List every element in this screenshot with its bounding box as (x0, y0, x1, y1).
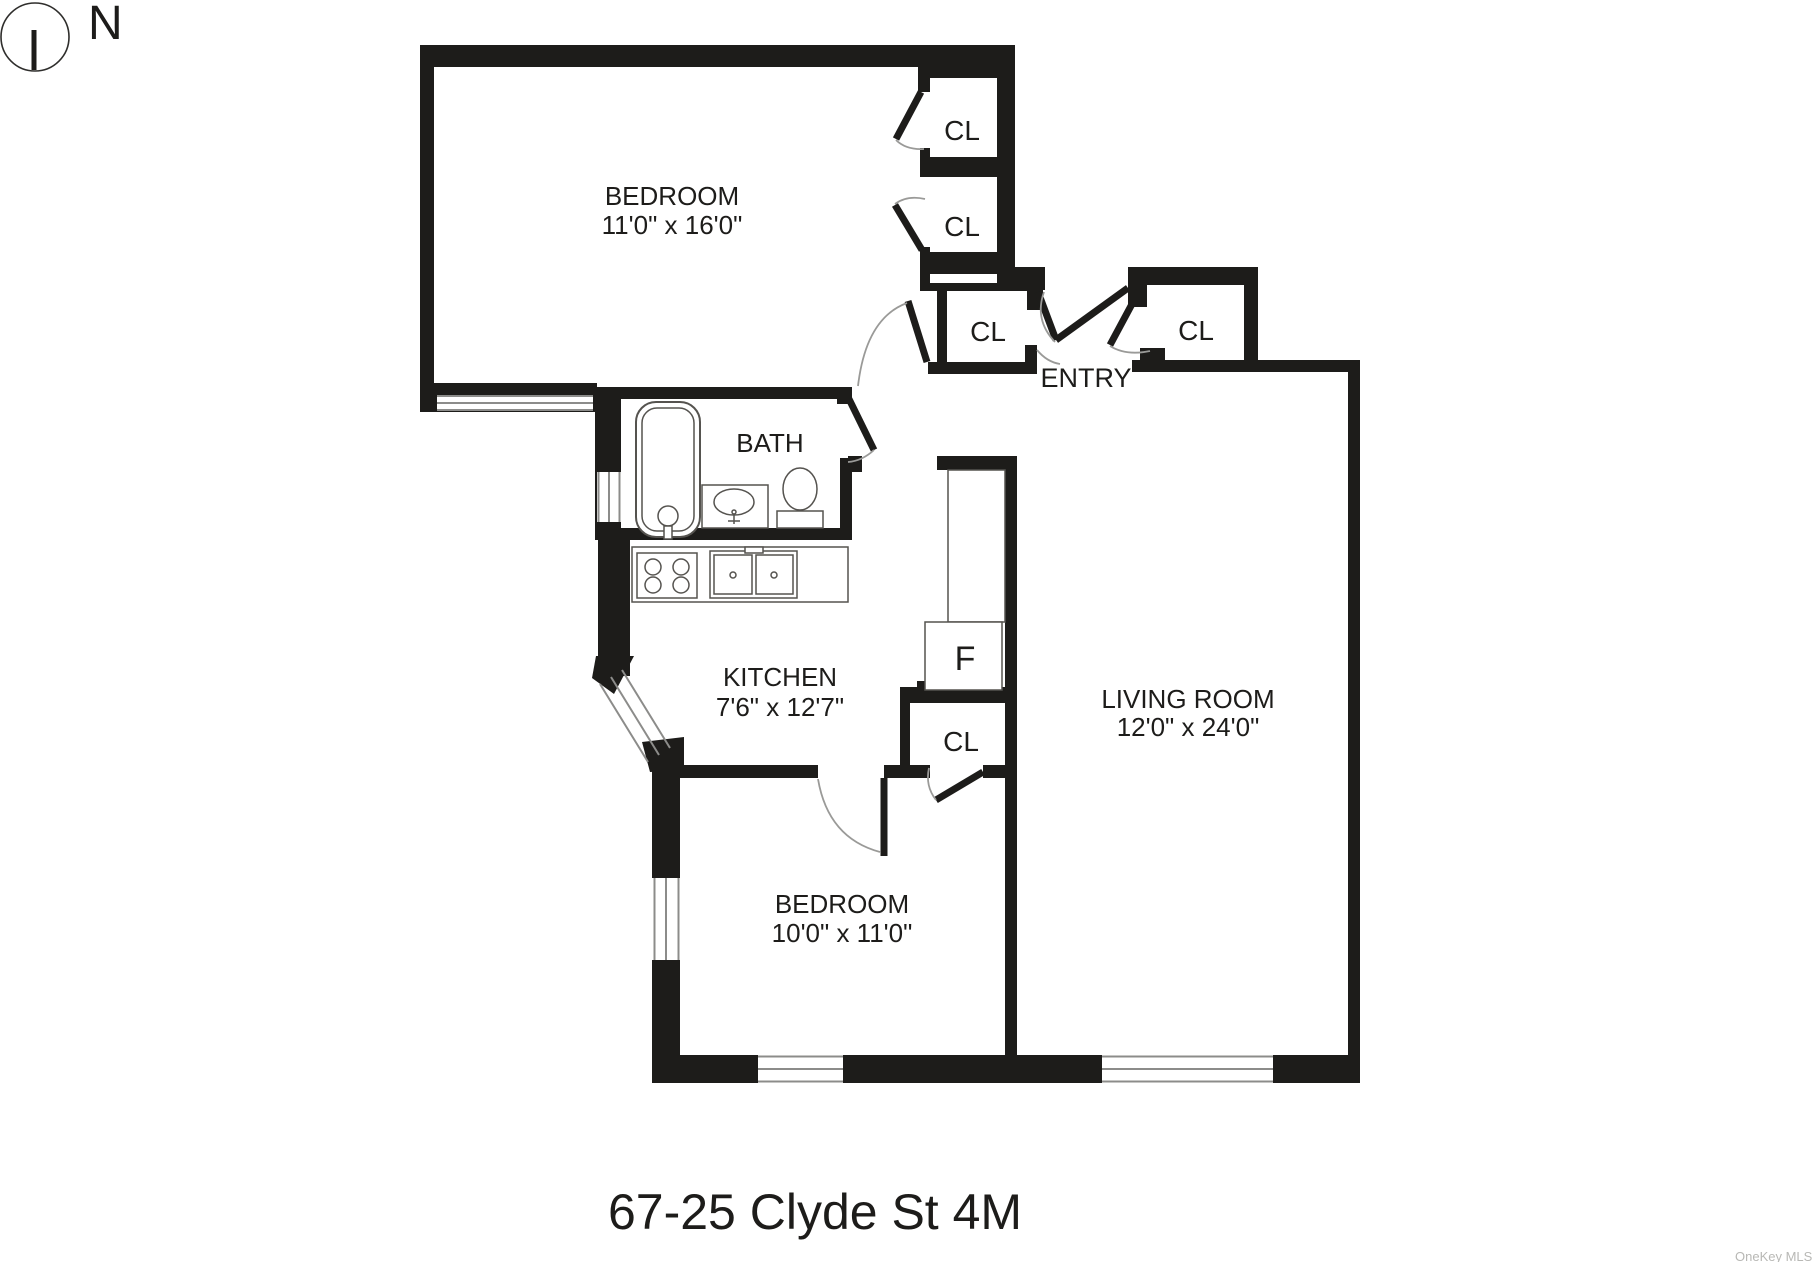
closet-entry-right-label: CL (1178, 315, 1214, 346)
wall-segment (884, 765, 930, 778)
wall-segment (1132, 360, 1355, 372)
wall-segment (420, 45, 434, 383)
north-label: N (88, 0, 123, 50)
wall-segment (420, 45, 1015, 67)
stove (637, 553, 697, 598)
bathtub (636, 402, 700, 539)
door-closet-top-1 (896, 92, 924, 149)
closet-entry-left-label: CL (970, 316, 1006, 347)
door-closet-entry-left (1037, 292, 1060, 364)
entry-label: ENTRY (1040, 363, 1131, 393)
kitchen-sink (710, 547, 797, 598)
wall-segment (1025, 345, 1037, 365)
wall-segment (1005, 490, 1017, 1055)
wall-segment (900, 703, 910, 765)
door-closet-bedroom-bottom (928, 768, 983, 800)
bedroom-top-label: BEDROOM (605, 181, 739, 211)
refrigerator-label: F (955, 640, 976, 678)
bathroom-sink (702, 485, 768, 528)
wall-segment (997, 45, 1015, 291)
window-living-room (1102, 1055, 1273, 1083)
wall-segment (937, 291, 947, 362)
floorplan-page: BEDROOM 11'0" x 16'0" BATH KITCHEN 7'6" … (0, 0, 1820, 1262)
wall-segment (1013, 267, 1045, 290)
bedroom-bottom-dims: 10'0" x 11'0" (772, 918, 913, 948)
wall-segment (598, 540, 630, 676)
wall-segment (595, 528, 852, 540)
wall-segment (920, 148, 930, 177)
wall-segment (930, 157, 997, 177)
bedroom-top-dims: 11'0" x 16'0" (602, 210, 743, 240)
living-room-dims: 12'0" x 24'0" (1117, 712, 1260, 742)
page-title: 67-25 Clyde St 4M (608, 1184, 1022, 1240)
kitchen-dims: 7'6" x 12'7" (716, 692, 844, 722)
watermark: OneKey MLS (1735, 1249, 1813, 1262)
door-bedroom-top (858, 301, 927, 386)
footer: 67-25 Clyde St 4M OneKey MLS (608, 1184, 1813, 1262)
door-bath (848, 399, 874, 462)
wall-segment (928, 362, 1037, 374)
floorplan-drawing: BEDROOM 11'0" x 16'0" BATH KITCHEN 7'6" … (0, 0, 1820, 1262)
kitchen-label: KITCHEN (723, 662, 837, 692)
wall-segment (1244, 285, 1258, 372)
door-closet-top-2 (895, 198, 925, 250)
window-bedroom-top (437, 395, 593, 411)
wall-segment (1128, 267, 1258, 285)
toilet (777, 468, 823, 528)
bath-label: BATH (736, 428, 803, 458)
closet-bedroom-bottom-label: CL (943, 726, 979, 757)
window-bedroom-bottom-left (653, 878, 680, 960)
wall-segment (678, 765, 818, 778)
wall-segment (983, 765, 1007, 778)
window-bath (597, 472, 621, 522)
wall-segment (1348, 360, 1360, 1083)
window-bedroom-bottom (758, 1055, 843, 1083)
living-room-label: LIVING ROOM (1101, 684, 1274, 714)
wall-segment (937, 456, 1017, 470)
wall-segment (652, 758, 680, 878)
bedroom-bottom-label: BEDROOM (775, 889, 909, 919)
closet-top-1-label: CL (944, 115, 980, 146)
wall-segment (595, 387, 852, 399)
closet-top-2-label: CL (944, 211, 980, 242)
door-kitchen-to-bedroom (818, 778, 884, 856)
compass: N (1, 0, 123, 71)
fixtures (632, 402, 1005, 690)
